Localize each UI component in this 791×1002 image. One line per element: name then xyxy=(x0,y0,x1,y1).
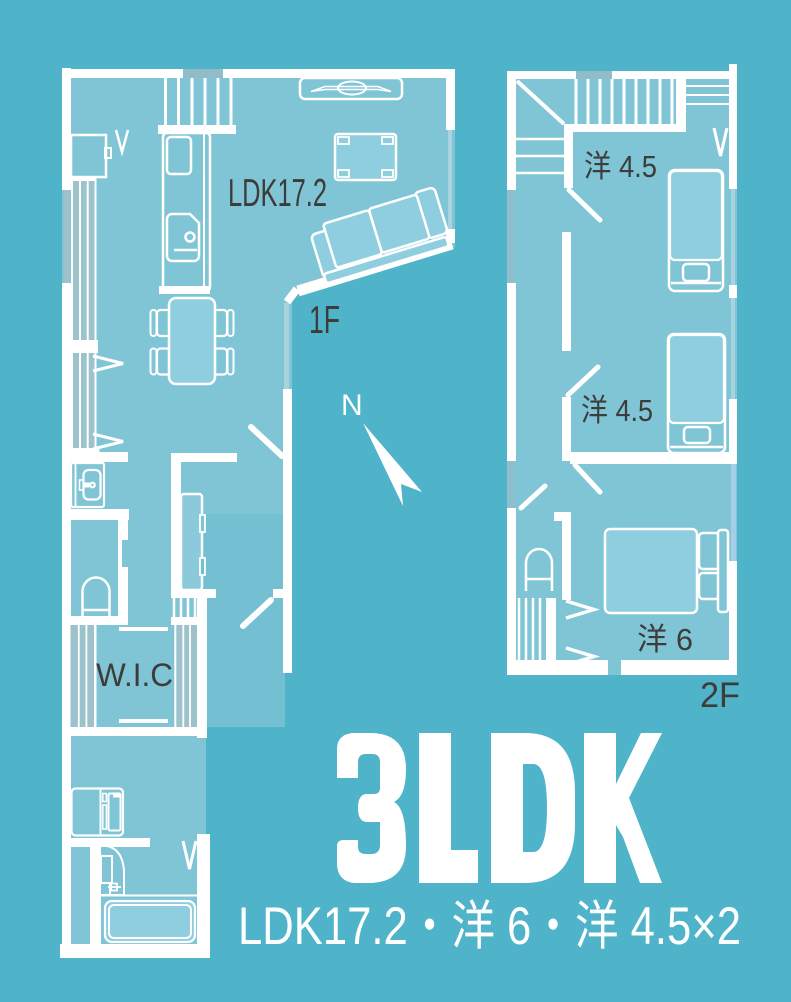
svg-text:洋 6: 洋 6 xyxy=(637,622,693,657)
svg-text:洋 4.5: 洋 4.5 xyxy=(581,393,653,428)
svg-text:洋 4.5: 洋 4.5 xyxy=(584,149,657,184)
svg-text:LDK17.2: LDK17.2 xyxy=(228,172,327,215)
svg-text:W.I.C: W.I.C xyxy=(96,657,173,693)
svg-text:1F: 1F xyxy=(309,299,340,342)
svg-text:2F: 2F xyxy=(700,676,740,715)
svg-text:LDK17.2・洋 6・洋 4.5×2: LDK17.2・洋 6・洋 4.5×2 xyxy=(238,897,741,956)
svg-text:N: N xyxy=(341,389,363,422)
